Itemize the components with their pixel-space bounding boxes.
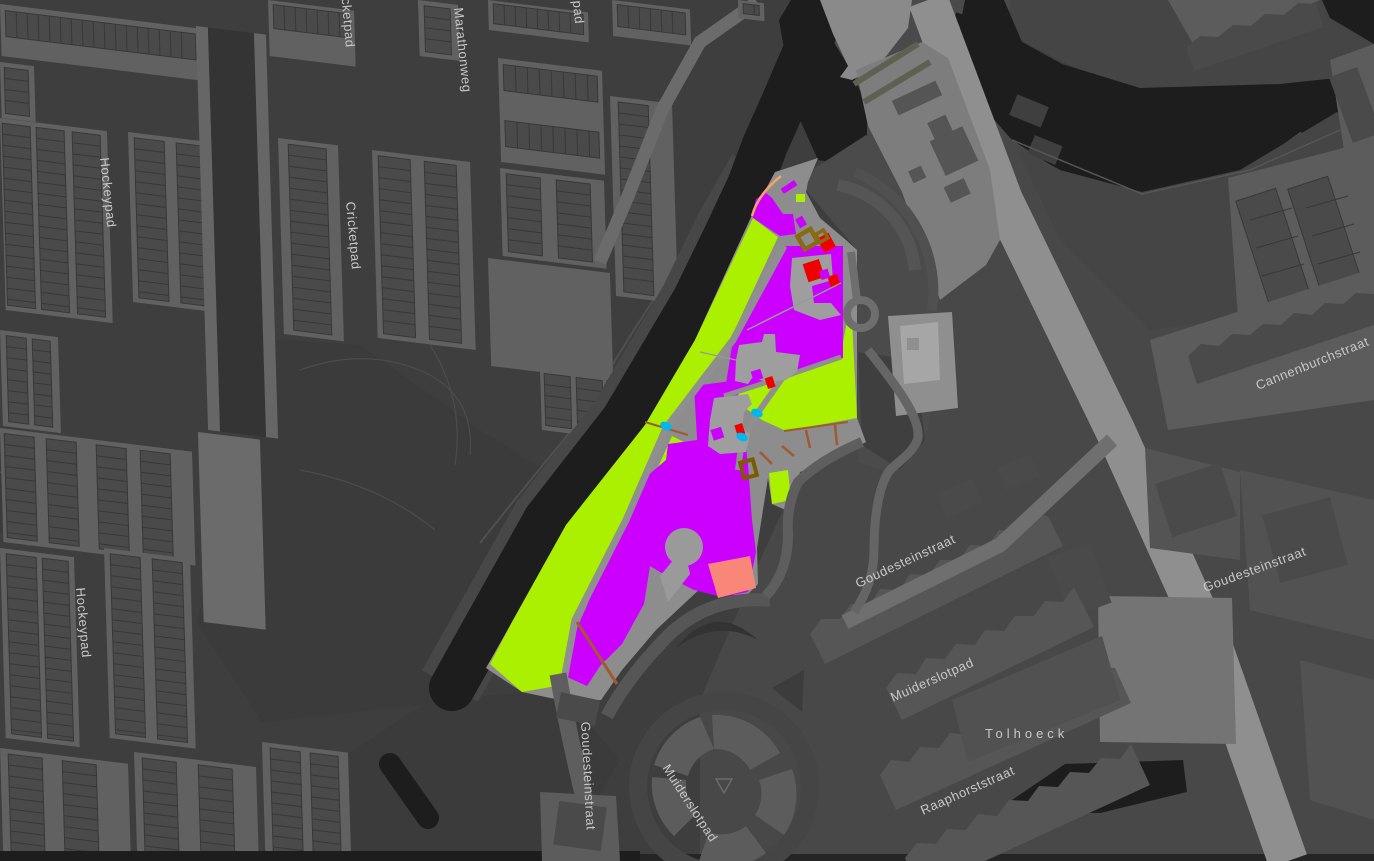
svg-text:Tolhoeck: Tolhoeck bbox=[985, 726, 1068, 741]
